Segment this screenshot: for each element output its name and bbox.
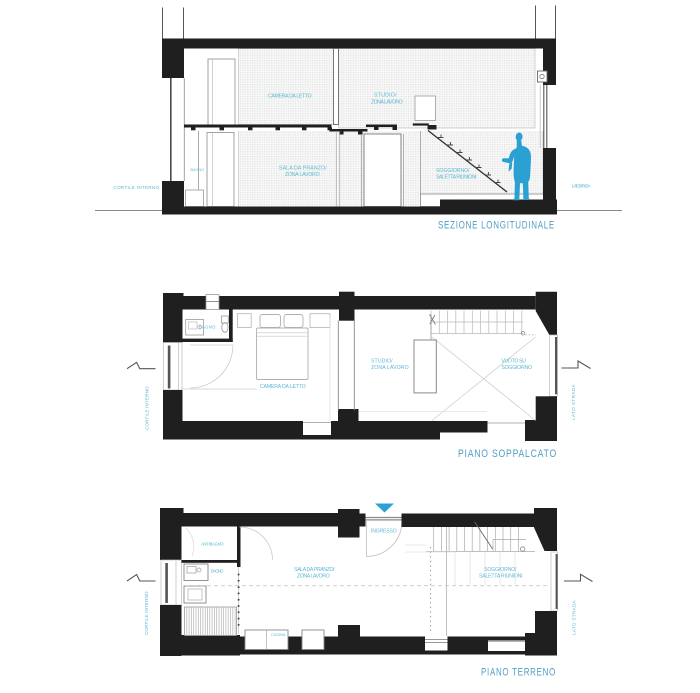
svg-text:SALETTA RIUNIONI: SALETTA RIUNIONI — [479, 574, 523, 580]
svg-text:LATO STRADA: LATO STRADA — [572, 184, 592, 189]
svg-text:SEZIONE LONGITUDINALE: SEZIONE LONGITUDINALE — [438, 220, 555, 232]
svg-text:SALA DA PRANZO/: SALA DA PRANZO/ — [279, 166, 327, 172]
svg-text:ANTIBAGNO: ANTIBAGNO — [201, 542, 224, 547]
svg-text:CAMERA DA LETTO: CAMERA DA LETTO — [260, 384, 306, 390]
svg-text:CORTILE INTERNO: CORTILE INTERNO — [114, 185, 160, 190]
svg-text:STUDIO/: STUDIO/ — [371, 359, 393, 365]
svg-text:INGRESSO: INGRESSO — [371, 529, 397, 535]
svg-text:CORTILE INTERNO: CORTILE INTERNO — [144, 386, 149, 430]
svg-text:PIANO TERRENO: PIANO TERRENO — [481, 667, 556, 679]
svg-text:BAGNO: BAGNO — [199, 325, 216, 330]
svg-text:LATO STRADA: LATO STRADA — [571, 383, 576, 420]
svg-text:PIANO SOPPALCATO: PIANO SOPPALCATO — [458, 448, 557, 460]
svg-text:SALETTA RIUNIONI: SALETTA RIUNIONI — [436, 175, 477, 181]
svg-text:ZONA LAVORO: ZONA LAVORO — [297, 574, 330, 580]
svg-text:CUCINA: CUCINA — [271, 632, 286, 637]
svg-text:ZONA LAVORO: ZONA LAVORO — [371, 100, 403, 106]
svg-text:SALA DA PRANZO/: SALA DA PRANZO/ — [294, 567, 335, 573]
svg-text:CORTILE INTERNO: CORTILE INTERNO — [144, 591, 149, 635]
svg-text:SOGGIORNO/: SOGGIORNO/ — [484, 567, 517, 573]
svg-text:VUOTO SU: VUOTO SU — [501, 359, 526, 365]
svg-text:SOGGIORNO: SOGGIORNO — [501, 365, 532, 371]
svg-text:LATO STRADA: LATO STRADA — [572, 599, 577, 635]
svg-text:STUDIO/: STUDIO/ — [374, 93, 397, 99]
svg-text:BAGNO: BAGNO — [211, 569, 224, 574]
svg-text:BAGNO: BAGNO — [191, 168, 205, 172]
svg-text:CAMERA DA LETTO: CAMERA DA LETTO — [268, 94, 312, 100]
svg-text:SOGGIORNO/: SOGGIORNO/ — [436, 168, 470, 174]
svg-text:ZONA LAVORO: ZONA LAVORO — [285, 172, 320, 178]
svg-text:ZONA LAVORO: ZONA LAVORO — [371, 365, 409, 371]
